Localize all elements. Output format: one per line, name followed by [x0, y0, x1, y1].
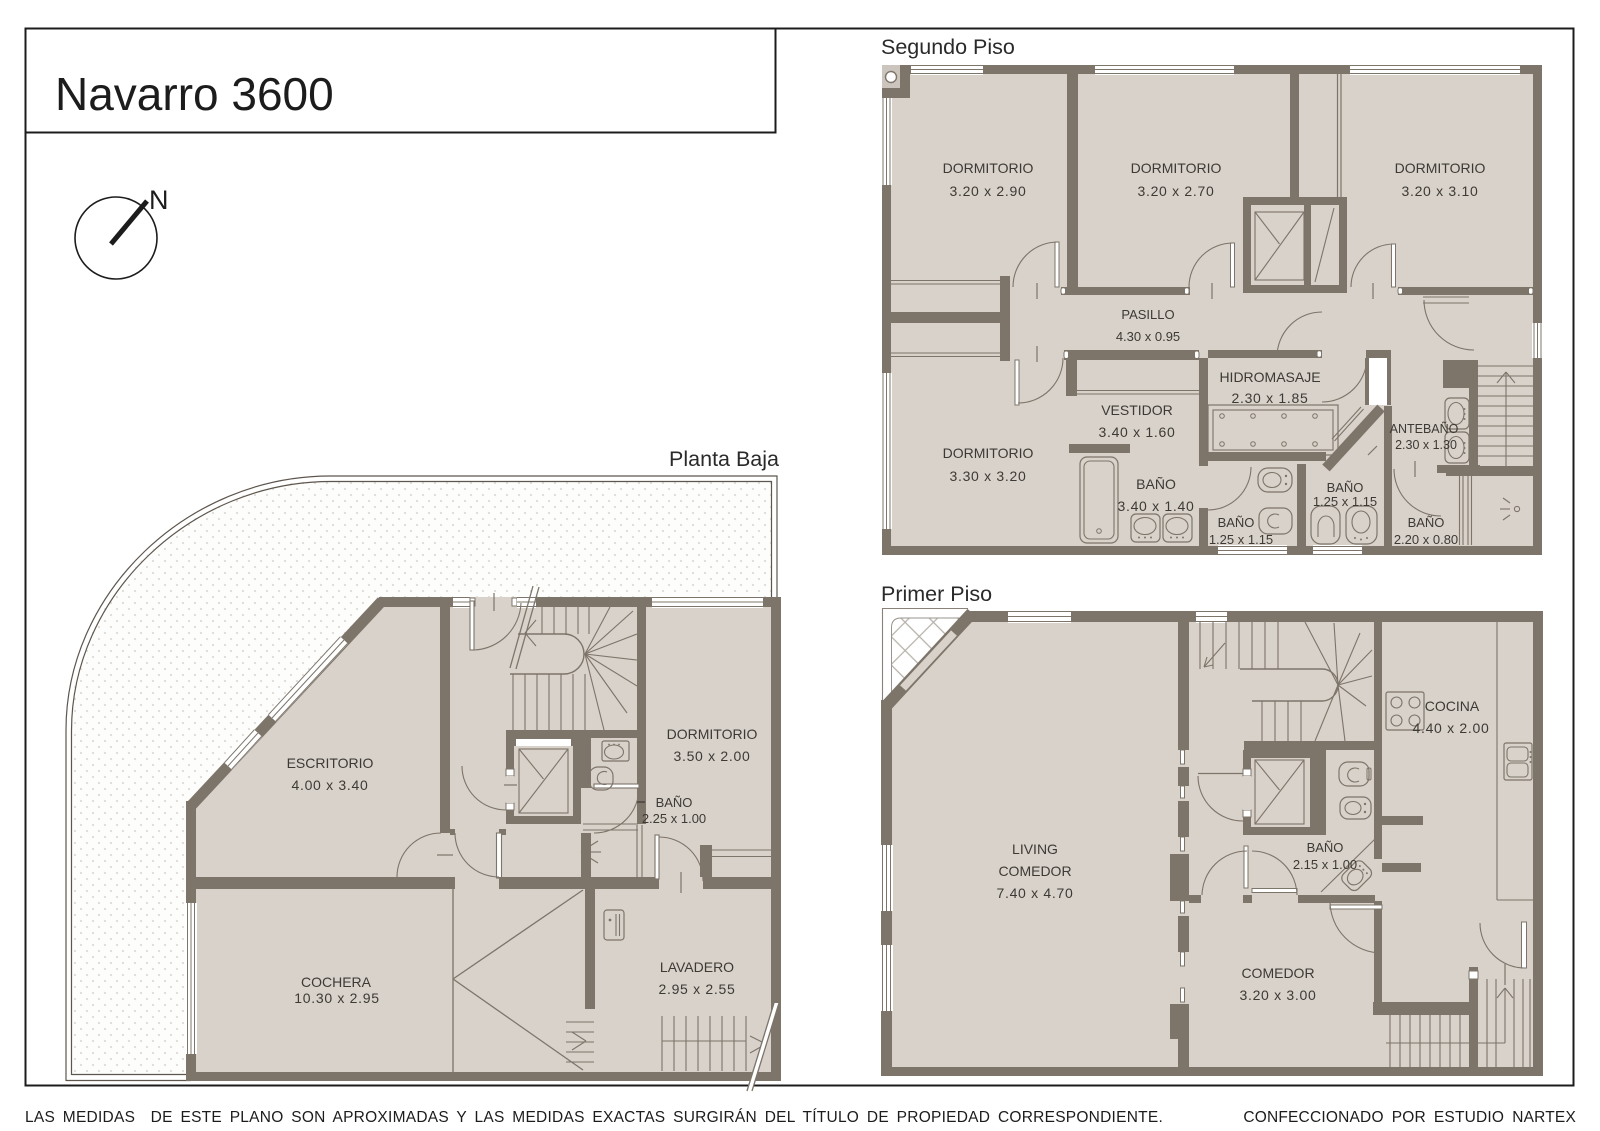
svg-text:BAÑO: BAÑO — [1218, 515, 1255, 530]
svg-text:4.40 x 2.00: 4.40 x 2.00 — [1413, 720, 1490, 736]
svg-text:PASILLO: PASILLO — [1121, 307, 1174, 322]
svg-text:1.25 x 1.15: 1.25 x 1.15 — [1313, 494, 1377, 509]
svg-text:3.30 x 3.20: 3.30 x 3.20 — [950, 468, 1027, 484]
svg-text:3.50 x 2.00: 3.50 x 2.00 — [674, 748, 751, 764]
svg-text:3.40 x 1.60: 3.40 x 1.60 — [1099, 424, 1176, 440]
svg-text:3.20 x 3.10: 3.20 x 3.10 — [1402, 183, 1479, 199]
svg-text:ANTEBAÑO: ANTEBAÑO — [1390, 422, 1459, 436]
svg-text:3.40 x 1.40: 3.40 x 1.40 — [1118, 498, 1195, 514]
svg-text:2.30 x 1.30: 2.30 x 1.30 — [1395, 438, 1457, 452]
svg-text:Primer Piso: Primer Piso — [881, 582, 992, 606]
svg-text:LAS MEDIDAS DE ESTE PLANO SON: LAS MEDIDAS DE ESTE PLANO SON APROXIMADA… — [25, 1109, 1163, 1126]
svg-text:ESCRITORIO: ESCRITORIO — [287, 755, 374, 771]
svg-text:2.20 x 0.80: 2.20 x 0.80 — [1394, 532, 1458, 547]
svg-text:1.25 x 1.15: 1.25 x 1.15 — [1209, 532, 1273, 547]
svg-text:LIVING: LIVING — [1012, 841, 1058, 857]
svg-text:HIDROMASAJE: HIDROMASAJE — [1219, 369, 1320, 385]
svg-text:VESTIDOR: VESTIDOR — [1101, 402, 1173, 418]
svg-text:2.25 x 1.00: 2.25 x 1.00 — [642, 811, 706, 826]
svg-text:Planta Baja: Planta Baja — [669, 447, 779, 471]
svg-text:BAÑO: BAÑO — [1307, 840, 1344, 855]
svg-text:4.00 x 3.40: 4.00 x 3.40 — [292, 777, 369, 793]
svg-text:COCHERA: COCHERA — [301, 974, 372, 990]
svg-text:Segundo Piso: Segundo Piso — [881, 35, 1015, 59]
svg-text:DORMITORIO: DORMITORIO — [1131, 160, 1222, 176]
svg-text:COMEDOR: COMEDOR — [1241, 965, 1314, 981]
svg-text:DORMITORIO: DORMITORIO — [943, 160, 1034, 176]
svg-text:2.30 x 1.85: 2.30 x 1.85 — [1232, 390, 1309, 406]
svg-text:Navarro 3600: Navarro 3600 — [55, 68, 334, 120]
svg-text:N: N — [149, 185, 169, 215]
svg-text:BAÑO: BAÑO — [656, 795, 693, 810]
svg-text:CONFECCIONADO POR ESTUDIO NART: CONFECCIONADO POR ESTUDIO NARTEX — [1243, 1109, 1576, 1126]
svg-text:4.30 x 0.95: 4.30 x 0.95 — [1116, 329, 1180, 344]
svg-text:3.20 x 2.70: 3.20 x 2.70 — [1138, 183, 1215, 199]
svg-text:3.20 x 2.90: 3.20 x 2.90 — [950, 183, 1027, 199]
svg-text:COCINA: COCINA — [1425, 698, 1480, 714]
svg-text:BAÑO: BAÑO — [1136, 476, 1176, 492]
svg-text:10.30 x 2.95: 10.30 x 2.95 — [294, 990, 379, 1006]
svg-text:DORMITORIO: DORMITORIO — [667, 726, 758, 742]
svg-text:DORMITORIO: DORMITORIO — [943, 445, 1034, 461]
svg-text:2.15 x 1.00: 2.15 x 1.00 — [1293, 857, 1357, 872]
svg-text:2.95 x 2.55: 2.95 x 2.55 — [659, 981, 736, 997]
svg-text:BAÑO: BAÑO — [1327, 480, 1364, 495]
svg-text:3.20 x 3.00: 3.20 x 3.00 — [1240, 987, 1317, 1003]
svg-text:BAÑO: BAÑO — [1408, 515, 1445, 530]
svg-text:COMEDOR: COMEDOR — [998, 863, 1071, 879]
svg-text:LAVADERO: LAVADERO — [660, 959, 734, 975]
svg-text:DORMITORIO: DORMITORIO — [1395, 160, 1486, 176]
svg-text:7.40 x 4.70: 7.40 x 4.70 — [997, 885, 1074, 901]
